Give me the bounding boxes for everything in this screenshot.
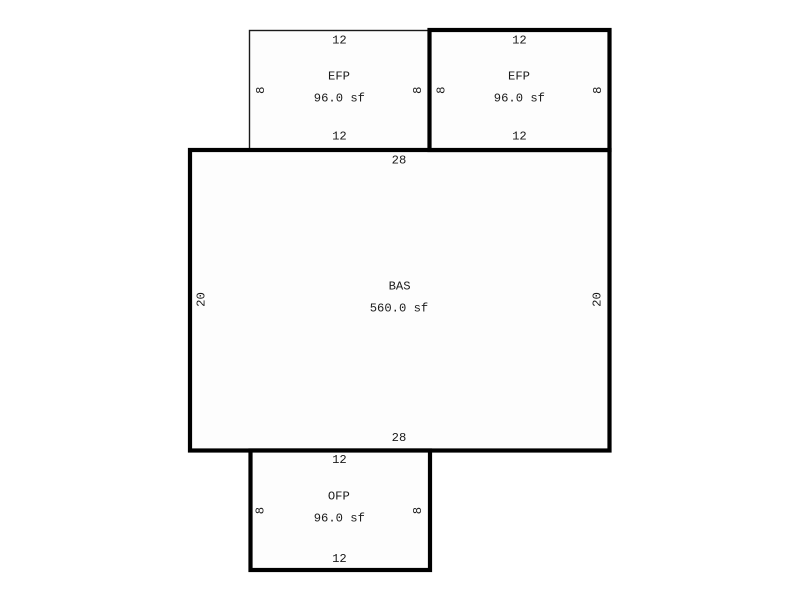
svg-text:EFP: EFP [328, 70, 350, 84]
svg-text:12: 12 [512, 130, 527, 144]
svg-text:8: 8 [591, 87, 605, 94]
svg-text:OFP: OFP [328, 489, 350, 503]
svg-text:96.0 sf: 96.0 sf [314, 91, 365, 105]
svg-text:96.0 sf: 96.0 sf [494, 91, 545, 105]
svg-text:8: 8 [254, 87, 268, 94]
svg-text:8: 8 [254, 507, 268, 514]
svg-text:12: 12 [332, 130, 347, 144]
svg-text:560.0 sf: 560.0 sf [370, 302, 429, 316]
svg-text:EFP: EFP [508, 70, 530, 84]
svg-text:12: 12 [332, 34, 347, 48]
svg-text:8: 8 [434, 87, 448, 94]
svg-text:12: 12 [332, 552, 347, 566]
svg-text:28: 28 [392, 431, 407, 445]
svg-text:12: 12 [332, 453, 347, 467]
svg-text:20: 20 [194, 292, 208, 307]
svg-text:20: 20 [591, 292, 605, 307]
svg-text:96.0 sf: 96.0 sf [314, 512, 365, 526]
svg-text:BAS: BAS [389, 279, 411, 293]
svg-text:28: 28 [392, 154, 407, 168]
svg-text:8: 8 [411, 87, 425, 94]
svg-text:12: 12 [512, 34, 527, 48]
svg-text:8: 8 [411, 507, 425, 514]
